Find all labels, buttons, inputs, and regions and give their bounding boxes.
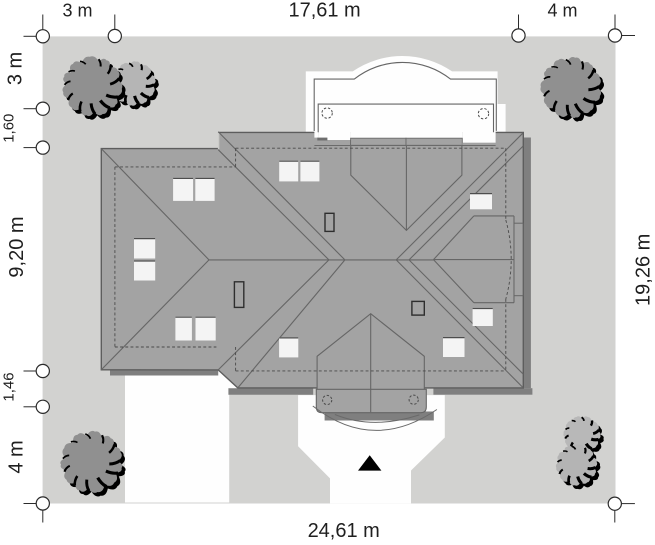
svg-text:1,60: 1,60 [1,114,18,143]
svg-text:1,46: 1,46 [1,372,18,401]
svg-text:3 m: 3 m [62,1,92,21]
svg-text:4 m: 4 m [6,440,28,473]
svg-text:3 m: 3 m [5,52,27,85]
svg-text:24,61 m: 24,61 m [308,520,380,540]
svg-text:9,20 m: 9,20 m [6,216,28,277]
svg-text:19,26 m: 19,26 m [633,234,655,306]
svg-text:17,61 m: 17,61 m [288,0,360,22]
svg-text:4 m: 4 m [547,1,577,21]
